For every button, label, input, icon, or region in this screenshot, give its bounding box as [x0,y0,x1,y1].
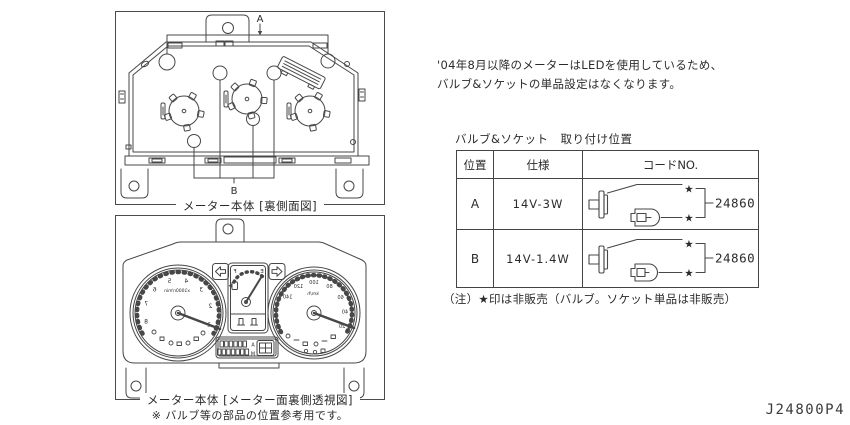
lcd-letter: A [251,343,255,349]
fuel-empty-label: E [260,269,264,275]
arrow-left-icon [216,267,226,276]
bracket [696,243,713,272]
stepper-motor [224,79,267,119]
svg-text:120: 120 [294,284,304,290]
table-note: （注）★印は非販売（バルブ。ソケット単品は非販売） [443,291,736,307]
row-b-position: B [457,230,494,287]
arrow-right-icon [272,267,282,276]
leader-socket [607,239,682,248]
front-view-diagram: 1 2 3 4 5 6 7 8 x1000r/min [116,216,384,399]
tab-hole [129,181,139,191]
housing-back [119,41,369,165]
tab-hole [344,181,354,191]
figure-front-view-box: 1 2 3 4 5 6 7 8 x1000r/min [115,215,385,400]
lcd-digits [218,341,249,355]
svg-text:x1000r/min: x1000r/min [164,288,190,294]
caption-front-view: メーター本体 [メーター面裏側透視図] [115,392,385,408]
lcd-letter: M [251,352,255,358]
parts-catalog-page: { "page": { "part_number": "J24800P4", "… [0,0,850,425]
star-icon: ★ [684,184,693,196]
row-a-spec: 14V-3W [494,179,583,230]
bulb-icon [631,264,657,281]
tab-hole [223,23,234,34]
svg-text:km/h: km/h [307,291,319,297]
tachometer: 1 2 3 4 5 6 7 8 x1000r/min [130,265,226,361]
speedometer: 20 40 60 80 100 120 140 km/h [268,267,360,359]
row-a-code-cell: ★ ★ 24860P [583,179,758,230]
label-a: A [257,14,264,25]
mount-tab-bottom-left [121,169,148,198]
svg-text:3: 3 [199,287,203,294]
speedometer-unit-label: km/h [307,291,319,297]
row-b-code-diagram: ★ ★ 24860PA [587,236,755,282]
bulb-icon [631,209,659,226]
tachometer-unit-label: x1000r/min [164,288,190,294]
svg-text:5: 5 [167,278,171,285]
svg-text:4: 4 [184,278,188,285]
star-icon: ★ [684,238,693,250]
mount-tab-top [216,219,244,242]
tab-hole [349,381,359,391]
intro-line-2: バルブ&ソケットの単品設定はなくなります。 [437,75,722,94]
fuel-gauge: F E [228,263,268,333]
caption-back-view: メーター本体 [裏側面図] [115,198,385,214]
page-part-number: J24800P4 [766,402,845,418]
svg-text:40: 40 [342,309,348,315]
fuel-full-label: F [233,269,236,275]
mount-tab-bottom-right [336,169,363,198]
intro-line-1: '04年8月以降のメーターはLEDを使用しているため、 [437,56,722,75]
svg-text:100: 100 [309,280,319,286]
bracket [696,189,713,218]
turn-indicator-left [213,264,229,280]
header-spec: 仕様 [494,151,583,179]
socket-icon [589,246,608,273]
svg-text:80: 80 [326,284,332,290]
tab-hole [131,381,141,391]
connector-slot [224,157,276,163]
svg-text:7: 7 [144,300,148,307]
tachometer-numbers: 1 2 3 4 5 6 7 8 [144,278,212,328]
svg-text:8: 8 [144,319,148,326]
stepper-motor [161,92,204,131]
bulb-position-a [159,24,335,70]
code-number: 24860P [715,196,755,211]
back-view-diagram: A B [116,12,384,204]
star-icon: ★ [684,267,693,279]
row-a-position: A [457,179,494,230]
table-title: バルブ&ソケット 取り付け位置 [455,131,632,147]
tab-hole [223,224,233,234]
star-icon: ★ [684,213,693,225]
code-number: 24860PA [715,250,755,265]
header-position: 位置 [457,151,494,179]
header-code: コードNO. [583,151,758,179]
svg-text:140: 140 [283,295,293,301]
seatbelt-icons [238,319,258,326]
intro-text: '04年8月以降のメーターはLEDを使用しているため、 バルブ&ソケットの単品設… [437,56,722,93]
odometer-lcd: A M [216,337,278,358]
figure-back-view-box: A B [115,11,385,205]
svg-text:6: 6 [153,287,157,294]
front-view-note: ※ バルブ等の部品の位置参考用です。 [115,407,385,423]
stepper-motor [287,92,330,131]
socket-icon [589,191,608,218]
label-b: B [231,186,238,197]
lcd-buttons [257,341,274,356]
bulb-socket-table: 位置 仕様 コードNO. A 14V-3W ★ ★ 24860P B 14V-1… [456,150,759,288]
mount-tab-top [206,15,249,42]
leader-socket [607,185,682,194]
pcb-connector [276,56,326,92]
turn-indicator-right [269,264,285,280]
svg-text:2: 2 [208,303,212,310]
row-a-code-diagram: ★ ★ 24860P [587,181,755,227]
warning-icons [152,330,205,346]
svg-text:60: 60 [337,295,343,301]
row-b-code-cell: ★ ★ 24860PA [583,230,758,287]
row-b-spec: 14V-1.4W [494,230,583,287]
